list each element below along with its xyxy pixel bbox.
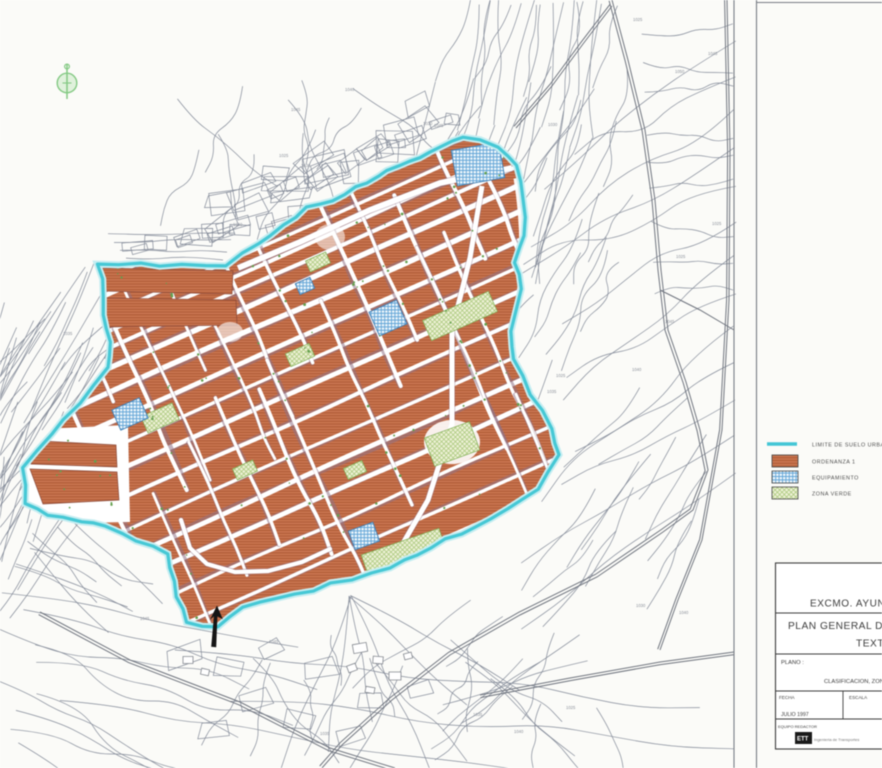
svg-text:1045: 1045 — [269, 639, 279, 644]
svg-text:1040: 1040 — [679, 610, 689, 615]
svg-text:EQUIPO REDACTOR: EQUIPO REDACTOR — [778, 724, 817, 729]
svg-text:Ingenieria de Transportes: Ingenieria de Transportes — [814, 737, 859, 742]
svg-text:1030: 1030 — [636, 603, 646, 608]
svg-text:1035: 1035 — [547, 389, 557, 394]
svg-text:1045: 1045 — [291, 107, 301, 112]
svg-text:1040: 1040 — [345, 87, 355, 92]
svg-text:ESCALA: ESCALA — [849, 695, 868, 700]
svg-text:1035: 1035 — [320, 731, 330, 736]
svg-text:LIMITE DE SUELO URBANO: LIMITE DE SUELO URBANO — [812, 443, 882, 449]
svg-text:PLAN GENERAL DE ORDENACION: PLAN GENERAL DE ORDENACION — [788, 621, 882, 632]
svg-text:1040: 1040 — [632, 367, 642, 372]
svg-text:1040: 1040 — [233, 222, 243, 227]
svg-text:1030: 1030 — [301, 163, 311, 168]
svg-text:ORDENANZA 1: ORDENANZA 1 — [812, 460, 856, 466]
svg-text:PLANO :: PLANO : — [781, 660, 804, 666]
svg-text:CLASIFICACION, ZONIFICACION: CLASIFICACION, ZONIFICACION — [824, 679, 882, 685]
svg-text:1045: 1045 — [665, 319, 675, 324]
svg-text:1025: 1025 — [566, 705, 576, 710]
svg-text:1045: 1045 — [708, 51, 718, 56]
svg-text:1030: 1030 — [423, 121, 433, 126]
svg-text:1025: 1025 — [556, 373, 566, 378]
svg-text:EXCMO. AYUNTAMIENTO: EXCMO. AYUNTAMIENTO — [810, 599, 882, 610]
svg-text:FECHA: FECHA — [779, 695, 796, 700]
svg-text:1050: 1050 — [675, 69, 685, 74]
svg-text:1025: 1025 — [712, 221, 722, 226]
svg-text:1025: 1025 — [633, 17, 643, 22]
svg-text:ETT: ETT — [797, 737, 809, 743]
svg-text:1045: 1045 — [434, 123, 444, 128]
svg-text:1025: 1025 — [279, 153, 289, 158]
svg-text:1035: 1035 — [63, 331, 73, 336]
svg-text:1025: 1025 — [676, 254, 686, 259]
svg-text:ZONA VERDE: ZONA VERDE — [812, 492, 852, 498]
svg-text:1035: 1035 — [473, 712, 483, 717]
svg-text:1040: 1040 — [514, 729, 524, 734]
svg-text:1030: 1030 — [548, 122, 558, 127]
svg-text:TEXTO: TEXTO — [856, 639, 882, 650]
svg-text:1045: 1045 — [140, 616, 150, 621]
svg-text:EQUIPAMIENTO: EQUIPAMIENTO — [812, 476, 859, 482]
svg-text:JULIO 1997: JULIO 1997 — [781, 712, 809, 718]
